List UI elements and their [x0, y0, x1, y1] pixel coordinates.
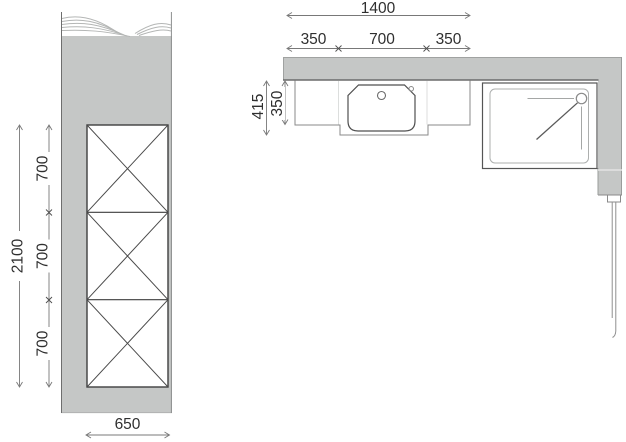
tall-unit-elevation: 2100 700 700 700 650 — [9, 12, 173, 438]
dim-label-seg-right: 350 — [436, 31, 462, 48]
dim-label-seg-left: 350 — [301, 31, 327, 48]
drawing-svg: 2100 700 700 700 650 — [0, 0, 626, 442]
drain-icon — [576, 93, 586, 103]
dim-label-segment-bottom: 700 — [35, 330, 52, 356]
break-lines-icon — [62, 17, 171, 37]
overflow-hole-icon — [409, 87, 414, 92]
shower-tray — [483, 83, 598, 169]
dim-label-seg-center: 700 — [369, 31, 395, 48]
glass-panel — [612, 202, 616, 338]
storage-unit — [87, 125, 168, 387]
washbasin — [348, 85, 415, 131]
dim-label-segment-middle: 700 — [35, 243, 52, 269]
technical-drawing: 2100 700 700 700 650 — [0, 0, 626, 442]
bathroom-plan: 1400 350 700 350 415 350 — [250, 0, 622, 338]
dim-label-depth-overall: 415 — [250, 94, 267, 120]
dim-label-width: 650 — [115, 416, 141, 433]
dim-label-segment-top: 700 — [35, 155, 52, 181]
dim-label-total-height: 2100 — [10, 238, 27, 273]
door-jamb — [608, 195, 621, 202]
dim-label-total-width: 1400 — [361, 0, 396, 17]
dim-label-depth-counter: 350 — [269, 90, 286, 116]
